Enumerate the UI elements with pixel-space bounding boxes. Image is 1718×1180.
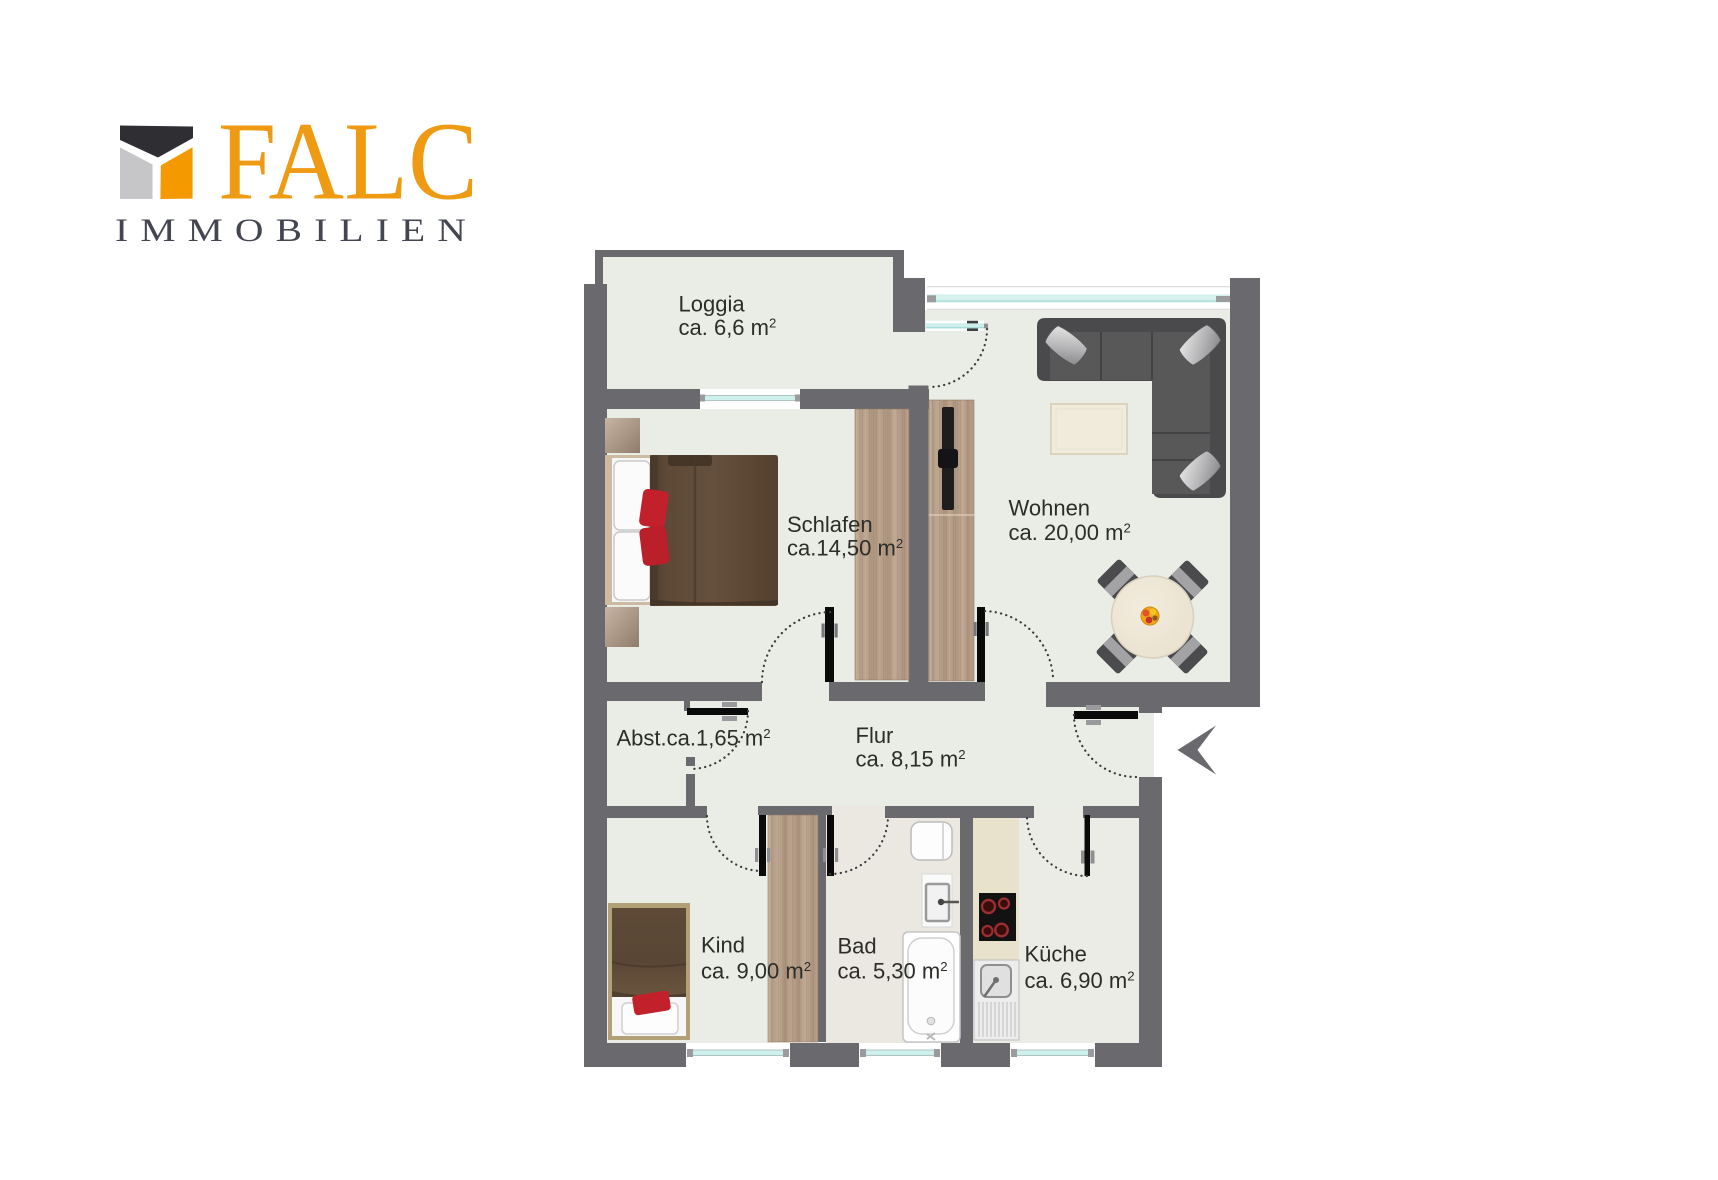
svg-text:Bad: Bad (838, 934, 877, 959)
svg-text:ca. 8,15 m2: ca. 8,15 m2 (856, 747, 966, 772)
svg-text:IMMOBILIEN: IMMOBILIEN (115, 213, 478, 249)
svg-text:ca. 6,90 m2: ca. 6,90 m2 (1025, 968, 1135, 993)
svg-text:ca.14,50 m2: ca.14,50 m2 (787, 536, 903, 561)
svg-text:Loggia: Loggia (679, 292, 746, 317)
svg-text:ca. 20,00 m2: ca. 20,00 m2 (1009, 520, 1131, 545)
svg-text:Abst.ca.1,65 m2: Abst.ca.1,65 m2 (617, 726, 771, 751)
svg-text:Küche: Küche (1025, 942, 1087, 967)
svg-text:Wohnen: Wohnen (1009, 496, 1091, 521)
svg-text:ca. 6,6 m2: ca. 6,6 m2 (679, 315, 777, 340)
svg-text:FALC: FALC (218, 101, 478, 224)
svg-text:Schlafen: Schlafen (787, 512, 873, 537)
svg-text:Kind: Kind (701, 933, 745, 958)
svg-text:Flur: Flur (856, 723, 894, 748)
svg-text:ca. 5,30 m2: ca. 5,30 m2 (838, 959, 948, 984)
svg-text:ca. 9,00 m2: ca. 9,00 m2 (701, 959, 811, 984)
